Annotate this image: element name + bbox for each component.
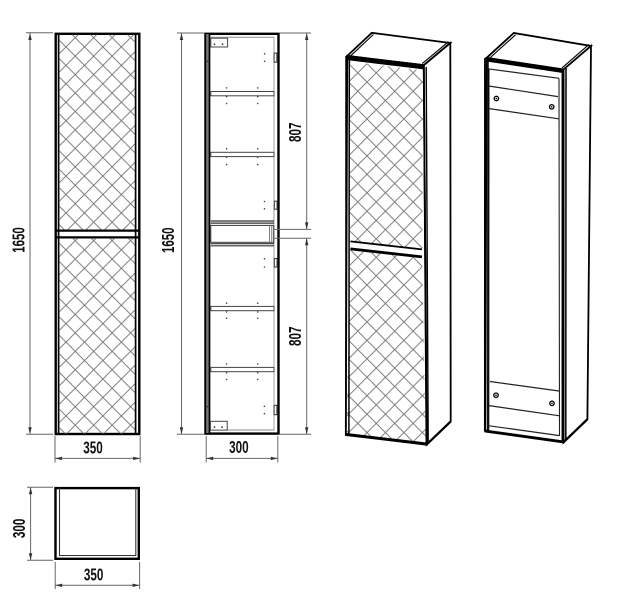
svg-text:300: 300 <box>229 437 249 457</box>
svg-text:807: 807 <box>285 123 305 143</box>
svg-text:300: 300 <box>9 518 29 538</box>
svg-text:350: 350 <box>84 564 104 584</box>
svg-text:1650: 1650 <box>158 227 178 253</box>
svg-text:807: 807 <box>285 327 305 347</box>
svg-text:350: 350 <box>83 438 103 458</box>
svg-text:1650: 1650 <box>9 227 29 253</box>
